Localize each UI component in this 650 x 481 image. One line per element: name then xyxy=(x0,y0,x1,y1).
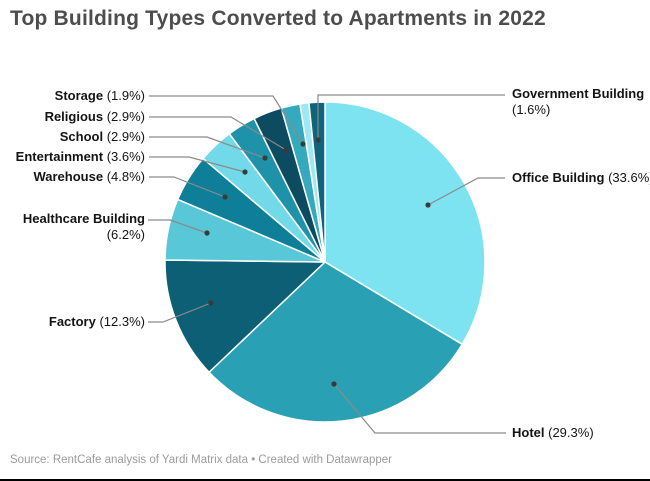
label-healthcare: Healthcare Building(6.2%) xyxy=(23,211,145,243)
leader-dot-government-building xyxy=(315,137,320,142)
label-factory-pct: (12.3%) xyxy=(99,314,145,329)
label-healthcare-name: Healthcare Building xyxy=(23,211,145,227)
label-government-name: Government Building xyxy=(512,86,644,102)
label-hotel: Hotel (29.3%) xyxy=(512,425,594,441)
label-religious: Religious (2.9%) xyxy=(45,109,145,125)
label-storage-name: Storage xyxy=(55,88,103,103)
label-entertainment-name: Entertainment xyxy=(16,149,103,164)
label-hotel-pct: (29.3%) xyxy=(548,425,594,440)
label-storage-pct: (1.9%) xyxy=(107,88,145,103)
label-warehouse-name: Warehouse xyxy=(33,169,103,184)
label-religious-name: Religious xyxy=(45,109,104,124)
label-religious-pct: (2.9%) xyxy=(107,109,145,124)
label-hotel-name: Hotel xyxy=(512,425,545,440)
label-school-name: School xyxy=(60,129,103,144)
leader-dot-office-building xyxy=(425,202,430,207)
label-entertainment-pct: (3.6%) xyxy=(107,149,145,164)
leader-dot-factory xyxy=(208,300,213,305)
label-warehouse-pct: (4.8%) xyxy=(107,169,145,184)
label-government: Government Building(1.6%) xyxy=(512,86,644,118)
leader-dot-religious xyxy=(283,147,288,152)
label-factory-name: Factory xyxy=(49,314,96,329)
source-note: Source: RentCafe analysis of Yardi Matri… xyxy=(10,454,392,466)
leader-dot-warehouse xyxy=(222,194,227,199)
leader-dot-hotel xyxy=(331,381,336,386)
leader-dot-school xyxy=(262,155,267,160)
label-factory: Factory (12.3%) xyxy=(49,314,145,330)
label-school: School (2.9%) xyxy=(60,129,145,145)
label-government-pct: (1.6%) xyxy=(512,102,644,118)
leader-dot-entertainment xyxy=(242,169,247,174)
label-healthcare-pct: (6.2%) xyxy=(23,227,145,243)
leader-dot-storage xyxy=(300,141,305,146)
chart-page: Top Building Types Converted to Apartmen… xyxy=(0,0,650,481)
label-office: Office Building (33.6%) xyxy=(512,170,650,186)
label-storage: Storage (1.9%) xyxy=(55,88,145,104)
label-office-name: Office Building xyxy=(512,170,604,185)
leader-dot-healthcare-building xyxy=(204,230,209,235)
label-warehouse: Warehouse (4.8%) xyxy=(33,169,145,185)
label-school-pct: (2.9%) xyxy=(107,129,145,144)
label-entertainment: Entertainment (3.6%) xyxy=(16,149,145,165)
label-office-pct: (33.6%) xyxy=(608,170,650,185)
